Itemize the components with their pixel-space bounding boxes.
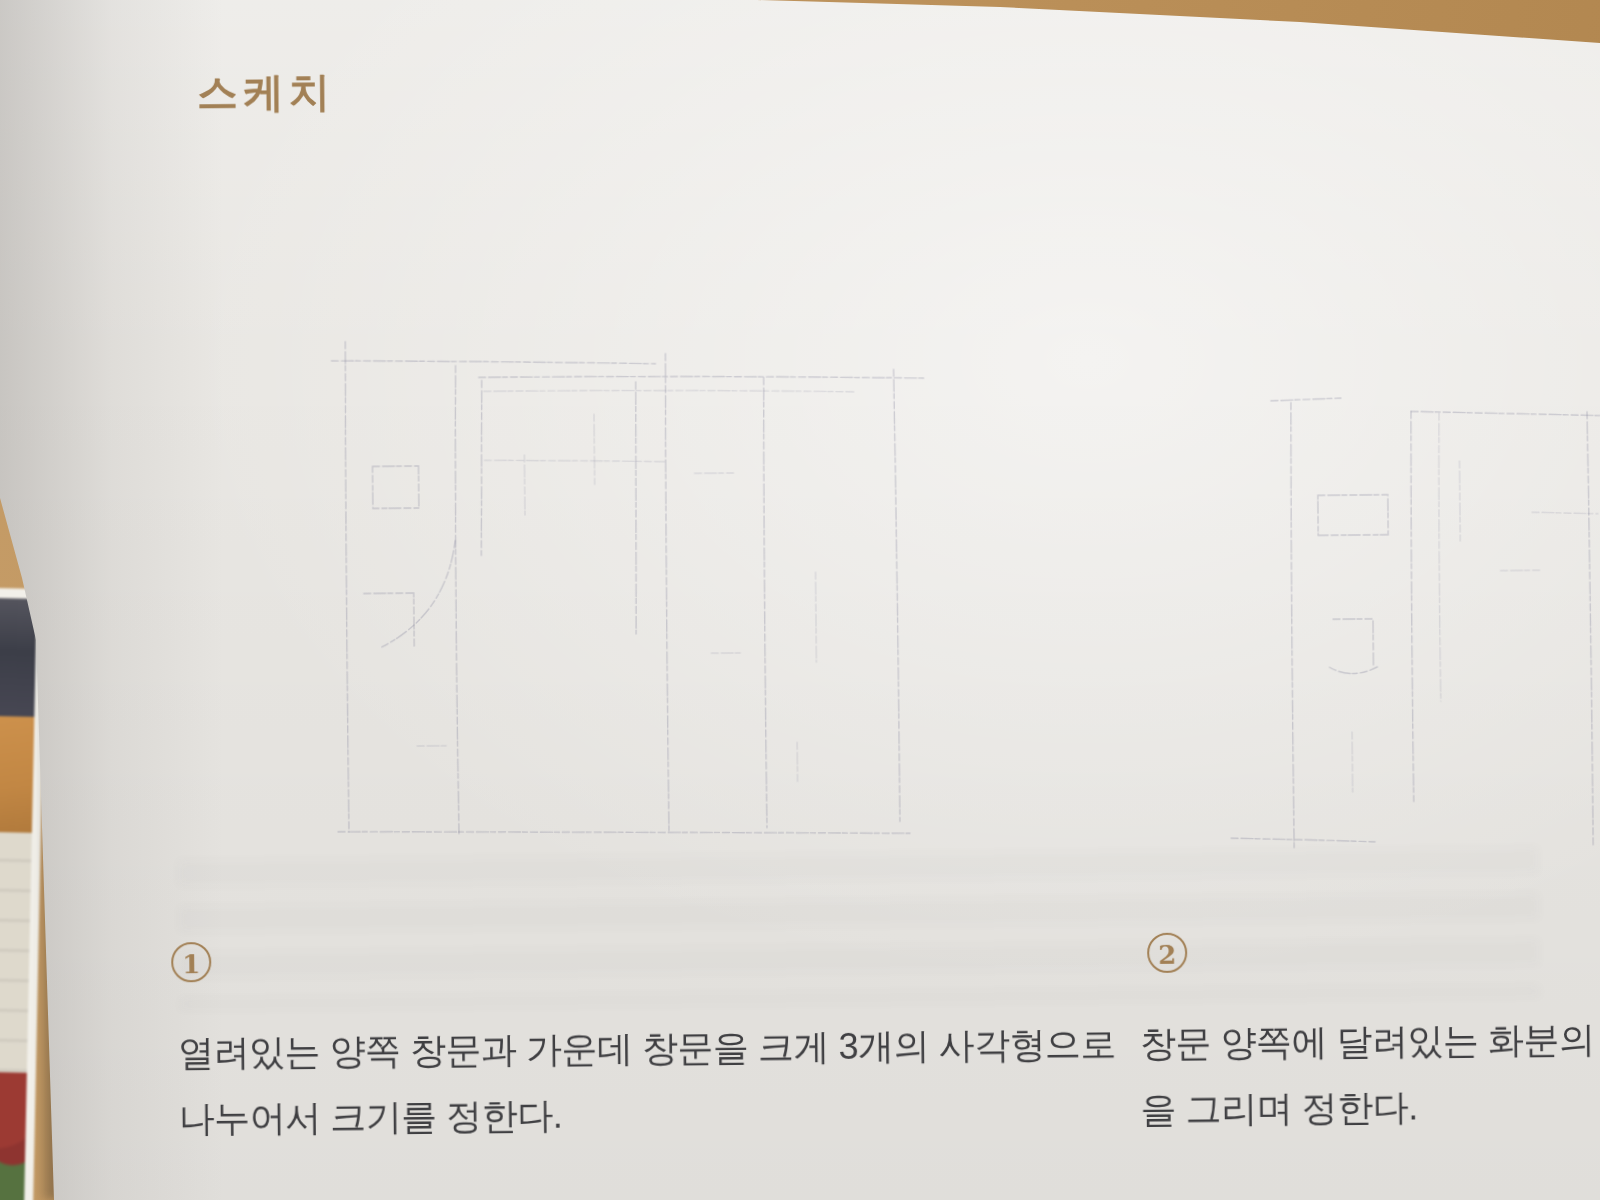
step-caption-line: 열려있는 양쪽 창문과 가운데 창문을 크게 3개의 사각형으로 [178,1023,1116,1073]
step-number-badge-2: 2 [1147,933,1187,973]
step-number: 1 [182,949,200,979]
underlying-photo-content [0,598,37,1200]
photo-wood-area [0,716,34,833]
page-title: 스케치 [197,65,336,121]
pencil-sketch-step1 [293,321,958,847]
step-number: 2 [1158,940,1176,970]
photo-flowers-area [0,1072,27,1200]
book-page-photo: 스케치 [0,0,1600,1200]
pencil-sketch-step2 [1199,370,1600,854]
step-caption-line: 나누어서 크기를 정한다. [179,1095,563,1140]
step-caption-line: 을 그리며 정한다. [1141,1086,1418,1130]
step-caption-2: 창문 양쪽에 달려있는 화분의 크기와 을 그리며 정한다. [1140,1006,1600,1143]
step-caption-line: 창문 양쪽에 달려있는 화분의 크기와 [1140,1018,1600,1064]
photo-paper-area [0,832,32,1073]
step-caption-1: 열려있는 양쪽 창문과 가운데 창문을 크게 3개의 사각형으로 나누어서 크기… [178,1011,1117,1152]
page-bleed-through [178,847,1539,1010]
book-page: 스케치 [0,0,1600,1200]
step-number-badge-1: 1 [171,942,211,982]
page-content: 스케치 [0,0,1600,1200]
